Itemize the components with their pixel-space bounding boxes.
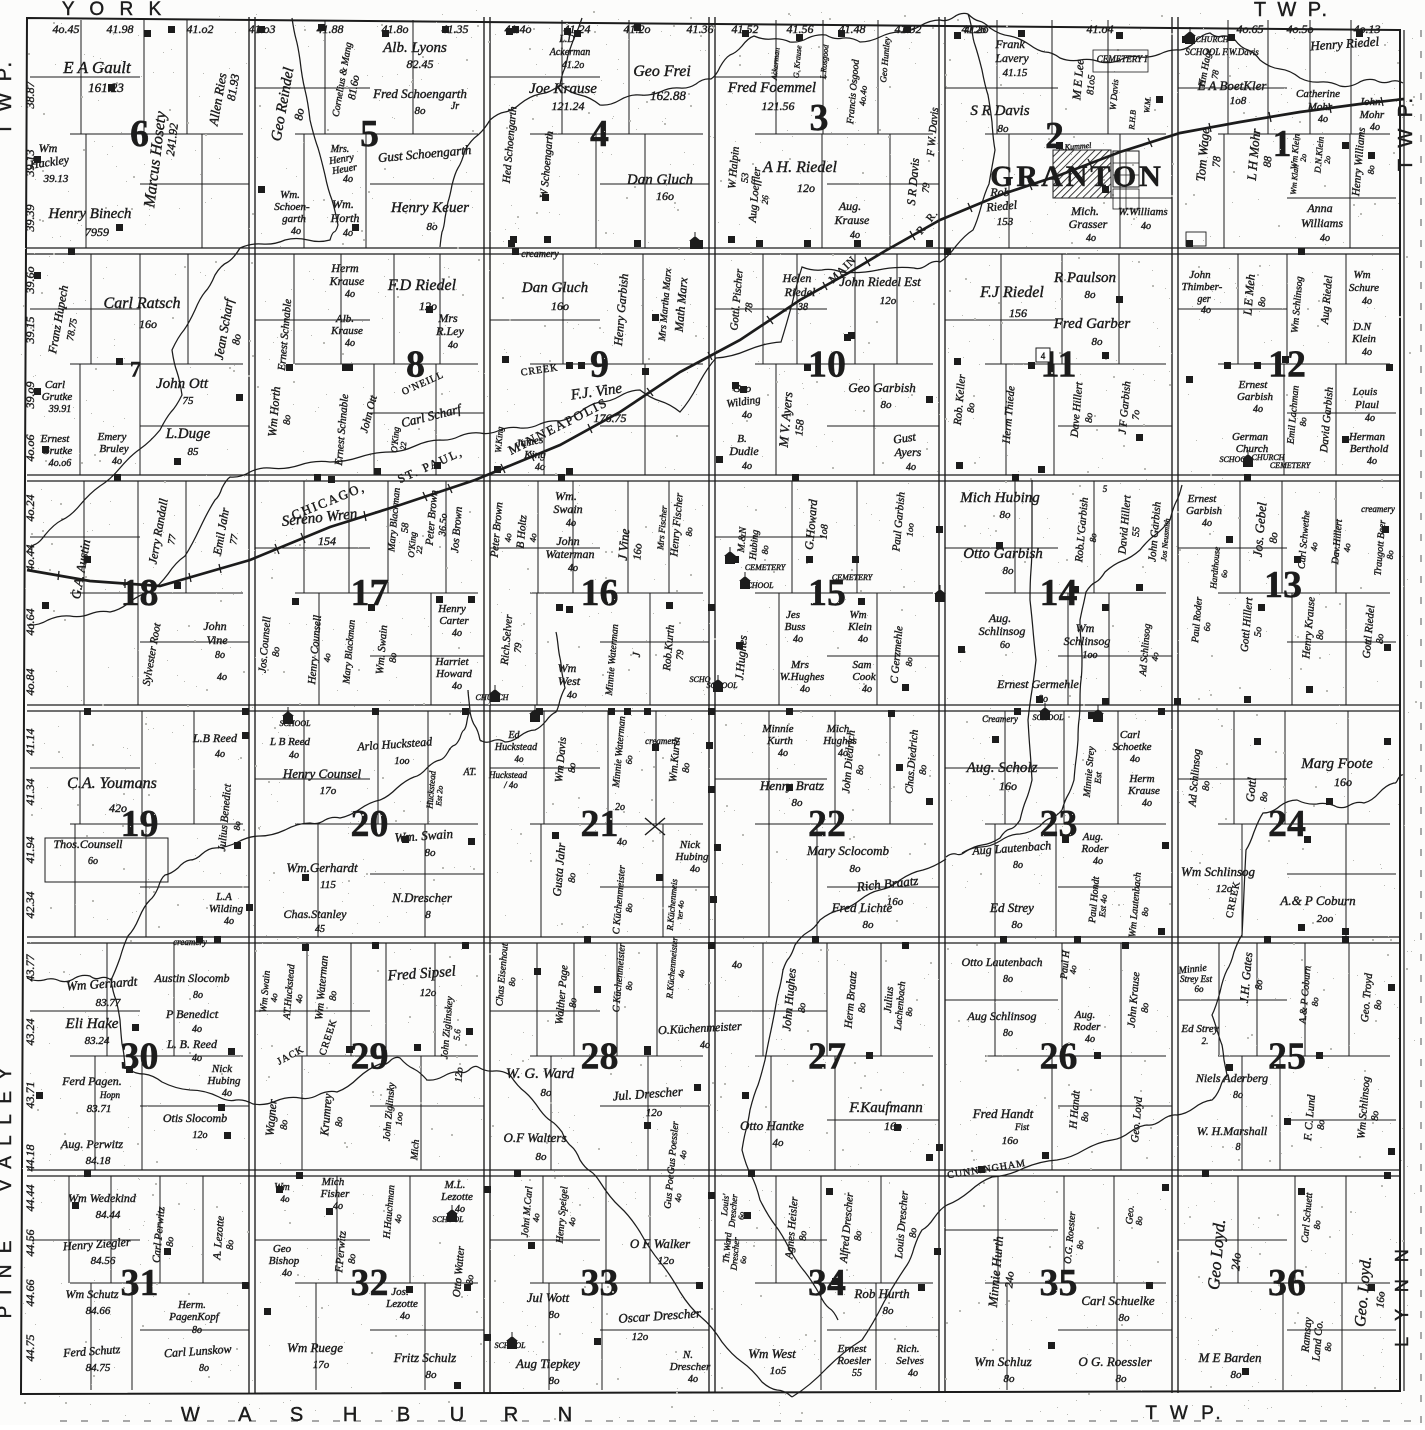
svg-text:Herman: Herman bbox=[1348, 431, 1386, 443]
svg-text:J Vine: J Vine bbox=[615, 528, 633, 561]
svg-text:Williams: Williams bbox=[1301, 216, 1343, 230]
svg-text:5.6: 5.6 bbox=[452, 1028, 463, 1041]
svg-text:4o.5o: 4o.5o bbox=[1287, 22, 1314, 36]
svg-text:Jr: Jr bbox=[451, 101, 459, 112]
svg-text:T W P.: T W P. bbox=[1395, 95, 1417, 171]
svg-text:8o: 8o bbox=[427, 221, 439, 233]
svg-text:8o: 8o bbox=[1080, 1111, 1092, 1122]
svg-text:Gottl: Gottl bbox=[1243, 776, 1259, 802]
svg-text:L.B Reed: L.B Reed bbox=[192, 731, 238, 745]
svg-text:8o: 8o bbox=[328, 990, 340, 1001]
svg-text:Jes: Jes bbox=[786, 609, 800, 621]
svg-text:Vine: Vine bbox=[206, 633, 228, 647]
svg-text:16: 16 bbox=[581, 572, 619, 614]
svg-text:8o: 8o bbox=[855, 764, 867, 775]
svg-text:P Benedict: P Benedict bbox=[165, 1007, 219, 1021]
svg-text:W. G. Ward: W. G. Ward bbox=[506, 1066, 575, 1082]
svg-text:R.Ley: R.Ley bbox=[435, 324, 464, 338]
svg-text:Strey Est: Strey Est bbox=[1180, 974, 1212, 984]
svg-text:Howard: Howard bbox=[435, 668, 472, 680]
svg-text:Krause: Krause bbox=[330, 325, 363, 337]
svg-text:Dan Gluch: Dan Gluch bbox=[626, 172, 693, 188]
svg-text:Aug.: Aug. bbox=[1082, 831, 1103, 843]
svg-text:4o: 4o bbox=[800, 684, 810, 695]
svg-text:Mary Sclocomb: Mary Sclocomb bbox=[806, 843, 889, 858]
svg-text:8o: 8o bbox=[1254, 979, 1266, 990]
svg-text:Schure: Schure bbox=[1349, 282, 1379, 294]
svg-text:4o: 4o bbox=[1201, 305, 1211, 316]
svg-text:35: 35 bbox=[1040, 1262, 1078, 1304]
svg-text:36.5o: 36.5o bbox=[437, 513, 450, 537]
svg-text:161.23: 161.23 bbox=[88, 80, 124, 95]
svg-text:4o: 4o bbox=[690, 864, 700, 875]
svg-text:8o: 8o bbox=[760, 544, 771, 554]
svg-text:41.34: 41.34 bbox=[23, 779, 37, 806]
svg-text:Creamery: Creamery bbox=[982, 714, 1018, 724]
svg-text:8o: 8o bbox=[567, 872, 579, 883]
svg-text:Herm.: Herm. bbox=[177, 1299, 206, 1311]
svg-text:12o: 12o bbox=[1216, 883, 1233, 895]
svg-text:24: 24 bbox=[1268, 803, 1306, 845]
svg-text:8o: 8o bbox=[567, 762, 579, 773]
svg-text:8o: 8o bbox=[908, 1227, 920, 1238]
svg-text:Thimber-: Thimber- bbox=[1182, 281, 1223, 293]
svg-text:Henry Keuer: Henry Keuer bbox=[390, 200, 469, 216]
svg-text:4o: 4o bbox=[742, 461, 752, 472]
svg-text:Fred Foemmel: Fred Foemmel bbox=[727, 80, 816, 96]
svg-text:33: 33 bbox=[581, 1262, 619, 1304]
svg-text:8o: 8o bbox=[1119, 1312, 1131, 1324]
svg-text:F.J Riedel: F.J Riedel bbox=[979, 284, 1044, 301]
svg-text:83.77: 83.77 bbox=[96, 997, 121, 1009]
svg-text:31: 31 bbox=[121, 1262, 159, 1304]
svg-text:4o: 4o bbox=[850, 230, 860, 241]
svg-text:4o: 4o bbox=[1370, 122, 1380, 133]
svg-text:Ernest: Ernest bbox=[837, 1343, 868, 1355]
svg-text:V A L L E Y: V A L L E Y bbox=[0, 1064, 16, 1191]
svg-text:C.A. Youmans: C.A. Youmans bbox=[67, 775, 157, 792]
svg-text:121.24: 121.24 bbox=[552, 99, 585, 113]
svg-text:Drescher: Drescher bbox=[669, 1361, 711, 1373]
svg-text:17o: 17o bbox=[320, 785, 337, 797]
svg-text:6o: 6o bbox=[1195, 984, 1205, 994]
svg-text:4o: 4o bbox=[345, 289, 355, 300]
svg-text:Buss: Buss bbox=[785, 621, 806, 633]
svg-text:Otis Slocomb: Otis Slocomb bbox=[163, 1111, 227, 1125]
svg-text:Harriet: Harriet bbox=[435, 656, 470, 668]
svg-text:25: 25 bbox=[1268, 1036, 1306, 1078]
svg-text:Horth: Horth bbox=[330, 211, 360, 225]
svg-text:Wm.: Wm. bbox=[280, 189, 300, 201]
svg-text:Ed: Ed bbox=[507, 730, 520, 741]
svg-text:8o: 8o bbox=[1003, 565, 1015, 577]
svg-text:Mohr: Mohr bbox=[1307, 101, 1333, 113]
svg-text:8o: 8o bbox=[904, 656, 915, 666]
svg-text:Roder: Roder bbox=[1073, 1021, 1102, 1033]
svg-text:Ackerman: Ackerman bbox=[549, 47, 591, 58]
svg-text:Wm West: Wm West bbox=[748, 1346, 796, 1361]
svg-text:12o: 12o bbox=[420, 987, 437, 999]
svg-text:8o: 8o bbox=[798, 1230, 810, 1241]
svg-text:41.56: 41.56 bbox=[787, 22, 814, 36]
svg-text:4o: 4o bbox=[793, 634, 803, 645]
svg-text:4o: 4o bbox=[1365, 413, 1375, 424]
svg-text:44.56: 44.56 bbox=[23, 1230, 37, 1257]
svg-text:Klein: Klein bbox=[847, 621, 872, 633]
svg-text:41.98: 41.98 bbox=[107, 22, 134, 36]
svg-text:41.2o: 41.2o bbox=[562, 60, 585, 71]
svg-text:Mohr: Mohr bbox=[1359, 109, 1385, 121]
svg-text:CEMETERY: CEMETERY bbox=[745, 563, 787, 572]
svg-text:28: 28 bbox=[581, 1036, 619, 1078]
svg-text:8: 8 bbox=[425, 909, 431, 921]
svg-text:4o: 4o bbox=[568, 563, 578, 574]
svg-text:Aug.: Aug. bbox=[988, 611, 1011, 625]
svg-text:SCHOOL F.W.Davis: SCHOOL F.W.Davis bbox=[1185, 47, 1259, 57]
svg-text:8o: 8o bbox=[282, 414, 294, 425]
svg-text:2o: 2o bbox=[1299, 153, 1309, 162]
svg-text:4o.o6: 4o.o6 bbox=[49, 458, 72, 469]
svg-text:Est: Est bbox=[1092, 771, 1103, 785]
svg-text:4o: 4o bbox=[281, 1194, 291, 1204]
svg-text:115: 115 bbox=[320, 879, 336, 891]
svg-text:Hubing: Hubing bbox=[675, 851, 710, 863]
svg-text:12: 12 bbox=[1268, 344, 1306, 386]
svg-text:Krause: Krause bbox=[329, 274, 365, 288]
svg-text:Lezotte: Lezotte bbox=[385, 1298, 418, 1310]
svg-text:L B Reed: L B Reed bbox=[269, 736, 311, 748]
svg-text:Joe Krause: Joe Krause bbox=[529, 81, 597, 97]
svg-text:4o.84: 4o.84 bbox=[23, 669, 37, 696]
svg-text:8o: 8o bbox=[1370, 1110, 1382, 1121]
svg-text:4o: 4o bbox=[742, 410, 752, 421]
svg-text:Wilding: Wilding bbox=[209, 903, 244, 915]
svg-text:8o: 8o bbox=[1092, 336, 1104, 348]
svg-text:GRANTON: GRANTON bbox=[990, 160, 1164, 193]
svg-text:8o: 8o bbox=[881, 399, 893, 411]
svg-text:Riedel: Riedel bbox=[784, 285, 816, 299]
svg-text:6o: 6o bbox=[1000, 640, 1010, 651]
svg-text:Austin Slocomb: Austin Slocomb bbox=[154, 971, 230, 985]
svg-text:4o: 4o bbox=[778, 748, 788, 759]
svg-text:84.56: 84.56 bbox=[91, 1255, 116, 1267]
svg-text:22: 22 bbox=[808, 803, 846, 845]
svg-text:Carter: Carter bbox=[439, 615, 469, 627]
svg-text:Hubing: Hubing bbox=[207, 1075, 242, 1087]
svg-text:8o: 8o bbox=[1000, 509, 1012, 521]
svg-text:M.L.: M.L. bbox=[444, 1179, 466, 1191]
svg-text:Riedel: Riedel bbox=[985, 198, 1018, 215]
svg-text:Sam: Sam bbox=[853, 659, 872, 671]
svg-text:4o.44: 4o.44 bbox=[23, 545, 37, 572]
svg-text:4o: 4o bbox=[566, 518, 576, 529]
svg-text:Ed Strey: Ed Strey bbox=[989, 900, 1034, 915]
svg-text:4o: 4o bbox=[528, 532, 539, 542]
svg-text:4o: 4o bbox=[1150, 651, 1161, 661]
svg-text:4o: 4o bbox=[222, 1088, 232, 1099]
svg-text:4o: 4o bbox=[1141, 221, 1151, 232]
svg-text:Grasser: Grasser bbox=[1069, 217, 1108, 231]
svg-text:8o: 8o bbox=[850, 863, 862, 875]
svg-text:Aug. Perwitz: Aug. Perwitz bbox=[60, 1137, 123, 1151]
svg-text:4o: 4o bbox=[224, 916, 234, 927]
svg-text:John Ott: John Ott bbox=[156, 376, 209, 392]
svg-text:162.88: 162.88 bbox=[650, 88, 686, 103]
svg-text:Huckstead: Huckstead bbox=[494, 742, 538, 753]
svg-text:Ayers: Ayers bbox=[894, 445, 922, 459]
svg-text:4o: 4o bbox=[1342, 542, 1353, 552]
svg-text:Carl Ratsch: Carl Ratsch bbox=[104, 295, 181, 312]
svg-text:1o5: 1o5 bbox=[770, 1365, 787, 1377]
svg-text:4o: 4o bbox=[282, 1268, 292, 1279]
svg-text:L.A: L.A bbox=[215, 891, 232, 903]
svg-text:4: 4 bbox=[590, 113, 609, 155]
svg-text:38.87: 38.87 bbox=[23, 81, 37, 110]
svg-text:4o: 4o bbox=[1362, 347, 1372, 358]
svg-text:Dudie: Dudie bbox=[728, 444, 759, 458]
svg-text:4o: 4o bbox=[673, 1192, 684, 1202]
svg-text:Roder: Roder bbox=[1081, 843, 1110, 855]
svg-text:4o: 4o bbox=[858, 634, 868, 645]
svg-text:9: 9 bbox=[590, 344, 609, 386]
svg-text:8o: 8o bbox=[279, 1119, 291, 1130]
svg-text:4o: 4o bbox=[1367, 456, 1377, 467]
svg-text:8o: 8o bbox=[465, 1274, 477, 1285]
svg-text:/ 4o: / 4o bbox=[503, 780, 518, 790]
svg-text:4o: 4o bbox=[908, 1368, 918, 1379]
svg-text:6o: 6o bbox=[1202, 621, 1213, 631]
svg-text:8o: 8o bbox=[966, 402, 978, 413]
svg-text:8o: 8o bbox=[1323, 1341, 1334, 1351]
svg-text:Chas.Stanley: Chas.Stanley bbox=[284, 907, 348, 921]
svg-text:Wm Ruege: Wm Ruege bbox=[287, 1340, 343, 1355]
svg-text:Helen: Helen bbox=[782, 271, 812, 285]
svg-text:Huckstead: Huckstead bbox=[488, 770, 527, 780]
svg-text:CEMETERY: CEMETERY bbox=[1270, 461, 1312, 470]
svg-text:78: 78 bbox=[744, 302, 756, 313]
svg-text:29: 29 bbox=[351, 1036, 389, 1078]
svg-text:8o: 8o bbox=[334, 1116, 346, 1127]
svg-text:8o: 8o bbox=[681, 762, 693, 773]
svg-text:Fred Schoengarth: Fred Schoengarth bbox=[372, 86, 467, 101]
svg-text:39.o9: 39.o9 bbox=[23, 382, 37, 410]
svg-text:8o: 8o bbox=[291, 107, 307, 121]
svg-text:Wm: Wm bbox=[39, 141, 58, 155]
svg-text:Schlinsog: Schlinsog bbox=[1064, 634, 1111, 648]
svg-text:84.75: 84.75 bbox=[86, 1362, 111, 1374]
svg-text:88: 88 bbox=[1262, 155, 1275, 168]
svg-text:8o: 8o bbox=[1088, 532, 1099, 542]
svg-text:4o: 4o bbox=[1085, 1034, 1095, 1045]
svg-text:158: 158 bbox=[793, 418, 806, 436]
svg-text:Geo: Geo bbox=[273, 1243, 292, 1255]
svg-text:Carl: Carl bbox=[45, 379, 65, 391]
svg-text:Wm: Wm bbox=[1353, 269, 1370, 281]
svg-text:39.6o: 39.6o bbox=[23, 267, 37, 295]
svg-text:4o.24: 4o.24 bbox=[23, 495, 37, 522]
svg-text:Nick: Nick bbox=[679, 839, 701, 851]
svg-text:CEMETERY: CEMETERY bbox=[832, 573, 874, 582]
svg-text:4o.o6: 4o.o6 bbox=[23, 435, 37, 462]
svg-text:John: John bbox=[203, 619, 226, 633]
svg-text:121.56: 121.56 bbox=[762, 99, 795, 113]
svg-text:8o: 8o bbox=[347, 1253, 359, 1264]
svg-text:4o: 4o bbox=[448, 340, 458, 351]
svg-text:Eli Hake: Eli Hake bbox=[65, 1016, 119, 1032]
svg-text:36: 36 bbox=[1268, 1262, 1306, 1304]
svg-text:Thos.Counsell: Thos.Counsell bbox=[53, 837, 123, 851]
svg-text:2oo: 2oo bbox=[1317, 913, 1334, 925]
svg-text:17o: 17o bbox=[313, 1359, 330, 1371]
svg-text:Krause: Krause bbox=[834, 213, 870, 227]
svg-text:F.Kaufmann: F.Kaufmann bbox=[848, 1100, 922, 1116]
svg-text:O F Walker: O F Walker bbox=[630, 1236, 691, 1251]
svg-text:44.66: 44.66 bbox=[23, 1280, 37, 1307]
svg-text:Est 2o: Est 2o bbox=[434, 785, 445, 807]
svg-text:12o: 12o bbox=[193, 1130, 208, 1141]
svg-text:12o: 12o bbox=[880, 295, 897, 307]
svg-text:Fred Lichte: Fred Lichte bbox=[831, 900, 893, 915]
svg-text:8o: 8o bbox=[1012, 919, 1024, 931]
svg-text:20: 20 bbox=[351, 803, 389, 845]
svg-text:ger: ger bbox=[1197, 294, 1210, 305]
svg-text:Henry: Henry bbox=[437, 603, 466, 615]
svg-text:8o: 8o bbox=[536, 1151, 548, 1163]
svg-text:8o: 8o bbox=[541, 1087, 553, 1099]
svg-text:83.71: 83.71 bbox=[87, 1103, 112, 1115]
svg-text:24o: 24o bbox=[1228, 1252, 1244, 1271]
svg-text:34: 34 bbox=[808, 1262, 846, 1304]
svg-text:8o: 8o bbox=[1003, 974, 1013, 985]
svg-text:4o: 4o bbox=[1068, 964, 1079, 974]
svg-text:8o: 8o bbox=[1084, 412, 1096, 423]
svg-text:PagenKopf: PagenKopf bbox=[168, 1311, 220, 1323]
svg-text:Alb. Lyons: Alb. Lyons bbox=[382, 40, 447, 56]
svg-text:6o: 6o bbox=[88, 856, 98, 867]
svg-text:4o: 4o bbox=[678, 1149, 689, 1159]
svg-text:10: 10 bbox=[808, 344, 846, 386]
svg-text:5: 5 bbox=[360, 113, 379, 155]
svg-text:Wm: Wm bbox=[849, 609, 866, 621]
svg-text:8o: 8o bbox=[1312, 1219, 1323, 1229]
svg-text:4o.64: 4o.64 bbox=[23, 609, 37, 636]
svg-text:Plaul: Plaul bbox=[1354, 399, 1379, 411]
svg-text:43.24: 43.24 bbox=[23, 1019, 37, 1046]
svg-text:55: 55 bbox=[1131, 526, 1143, 537]
svg-text:4o: 4o bbox=[531, 1212, 542, 1222]
svg-text:R.H.B: R.H.B bbox=[1127, 110, 1138, 131]
svg-text:4: 4 bbox=[1041, 351, 1046, 361]
svg-text:S R Davis: S R Davis bbox=[970, 103, 1029, 119]
svg-text:176.75: 176.75 bbox=[594, 411, 627, 425]
svg-text:Waterman: Waterman bbox=[546, 547, 595, 561]
svg-text:8o: 8o bbox=[797, 1002, 809, 1013]
svg-text:Carl Schuelke: Carl Schuelke bbox=[1081, 1293, 1155, 1308]
svg-text:Fritz Schulz: Fritz Schulz bbox=[393, 1350, 456, 1365]
svg-text:16o: 16o bbox=[656, 189, 674, 203]
svg-text:A H. Riedel: A H. Riedel bbox=[762, 159, 837, 176]
svg-text:4o: 4o bbox=[345, 338, 355, 349]
svg-text:16o: 16o bbox=[1374, 1290, 1387, 1308]
svg-text:4o: 4o bbox=[515, 754, 525, 764]
svg-text:81o5: 81o5 bbox=[1085, 74, 1098, 95]
svg-text:8o: 8o bbox=[426, 1369, 438, 1381]
svg-text:8o: 8o bbox=[1257, 296, 1269, 307]
svg-text:P I N E: P I N E bbox=[0, 1238, 16, 1319]
svg-text:4o: 4o bbox=[452, 628, 462, 639]
svg-text:8o: 8o bbox=[507, 976, 518, 986]
svg-text:153: 153 bbox=[997, 216, 1014, 228]
svg-text:Louis: Louis bbox=[1352, 386, 1377, 398]
svg-text:Minnie: Minnie bbox=[761, 723, 793, 735]
svg-text:Grutke: Grutke bbox=[42, 391, 73, 403]
svg-text:W. H.Marshall: W. H.Marshall bbox=[1197, 1124, 1268, 1138]
svg-text:3: 3 bbox=[810, 97, 829, 139]
svg-text:8o: 8o bbox=[1375, 633, 1387, 644]
svg-text:12o: 12o bbox=[797, 181, 815, 195]
svg-text:85: 85 bbox=[188, 446, 200, 458]
svg-text:John Riedel Est: John Riedel Est bbox=[839, 274, 921, 289]
svg-text:Aug. Scholz: Aug. Scholz bbox=[966, 760, 1038, 776]
svg-text:4o: 4o bbox=[192, 1024, 202, 1035]
svg-text:5: 5 bbox=[1103, 484, 1108, 494]
svg-text:Selves: Selves bbox=[896, 1355, 923, 1367]
svg-text:7: 7 bbox=[130, 357, 141, 382]
svg-text:L Y N N: L Y N N bbox=[1392, 1243, 1412, 1347]
svg-text:Ernest: Ernest bbox=[40, 433, 71, 445]
svg-text:16o: 16o bbox=[1002, 1135, 1019, 1147]
svg-text:8o: 8o bbox=[1259, 791, 1271, 802]
svg-text:Wm: Wm bbox=[1076, 621, 1095, 635]
svg-text:8o: 8o bbox=[1140, 906, 1151, 916]
svg-text:4o: 4o bbox=[1130, 754, 1140, 765]
svg-text:Bishop: Bishop bbox=[269, 1255, 300, 1267]
svg-text:8o: 8o bbox=[1310, 996, 1321, 1006]
svg-text:4o: 4o bbox=[1318, 114, 1328, 125]
svg-text:8o: 8o bbox=[1075, 1239, 1086, 1249]
svg-text:83.24: 83.24 bbox=[85, 1035, 110, 1047]
svg-text:Rob: Rob bbox=[989, 185, 1009, 199]
svg-text:4o: 4o bbox=[343, 174, 353, 185]
svg-text:Herm: Herm bbox=[330, 261, 359, 275]
svg-text:Bruley: Bruley bbox=[99, 443, 128, 455]
svg-text:8o: 8o bbox=[863, 919, 875, 931]
svg-text:L.D: L.D bbox=[558, 34, 575, 45]
svg-text:Hopn: Hopn bbox=[99, 1090, 120, 1100]
svg-text:W.Williams: W.Williams bbox=[1118, 206, 1167, 218]
svg-text:John: John bbox=[1359, 96, 1381, 108]
svg-text:82.45: 82.45 bbox=[407, 57, 434, 71]
svg-text:4o: 4o bbox=[503, 532, 514, 542]
svg-text:Otto Lautenbach: Otto Lautenbach bbox=[962, 955, 1043, 969]
svg-text:41.15: 41.15 bbox=[1003, 67, 1028, 79]
svg-text:8o: 8o bbox=[549, 1309, 561, 1321]
svg-text:Lavery: Lavery bbox=[994, 51, 1029, 65]
svg-text:Fisher: Fisher bbox=[320, 1188, 350, 1200]
svg-text:4o: 4o bbox=[567, 1216, 578, 1226]
svg-text:4o: 4o bbox=[452, 681, 462, 692]
svg-text:8o: 8o bbox=[998, 123, 1010, 135]
svg-text:Ed Strey: Ed Strey bbox=[1180, 1023, 1218, 1035]
svg-text:4o: 4o bbox=[294, 993, 305, 1003]
svg-text:84.44: 84.44 bbox=[96, 1209, 121, 1221]
svg-text:8o: 8o bbox=[883, 1305, 895, 1317]
svg-text:79: 79 bbox=[921, 182, 933, 193]
svg-text:1o8: 1o8 bbox=[818, 524, 830, 540]
svg-text:8o: 8o bbox=[232, 820, 243, 830]
svg-text:Wm.: Wm. bbox=[555, 489, 577, 503]
svg-text:8o: 8o bbox=[388, 652, 400, 663]
